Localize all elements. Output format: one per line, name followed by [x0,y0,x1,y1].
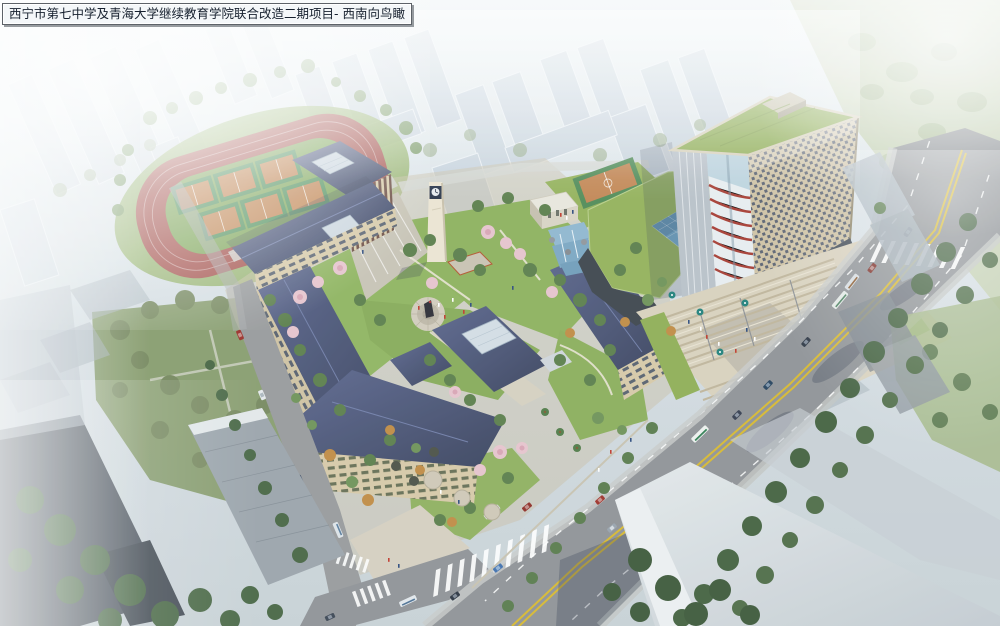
title-text: 西宁市第七中学及青海大学继续教育学院联合改造二期项目- 西南向鸟瞰 [9,6,405,21]
rendering-viewport: 西宁市第七中学及青海大学继续教育学院联合改造二期项目- 西南向鸟瞰 [0,0,1000,626]
title-label: 西宁市第七中学及青海大学继续教育学院联合改造二期项目- 西南向鸟瞰 [2,3,412,25]
aerial-rendering [0,0,1000,626]
haze-overlays [0,0,1000,626]
